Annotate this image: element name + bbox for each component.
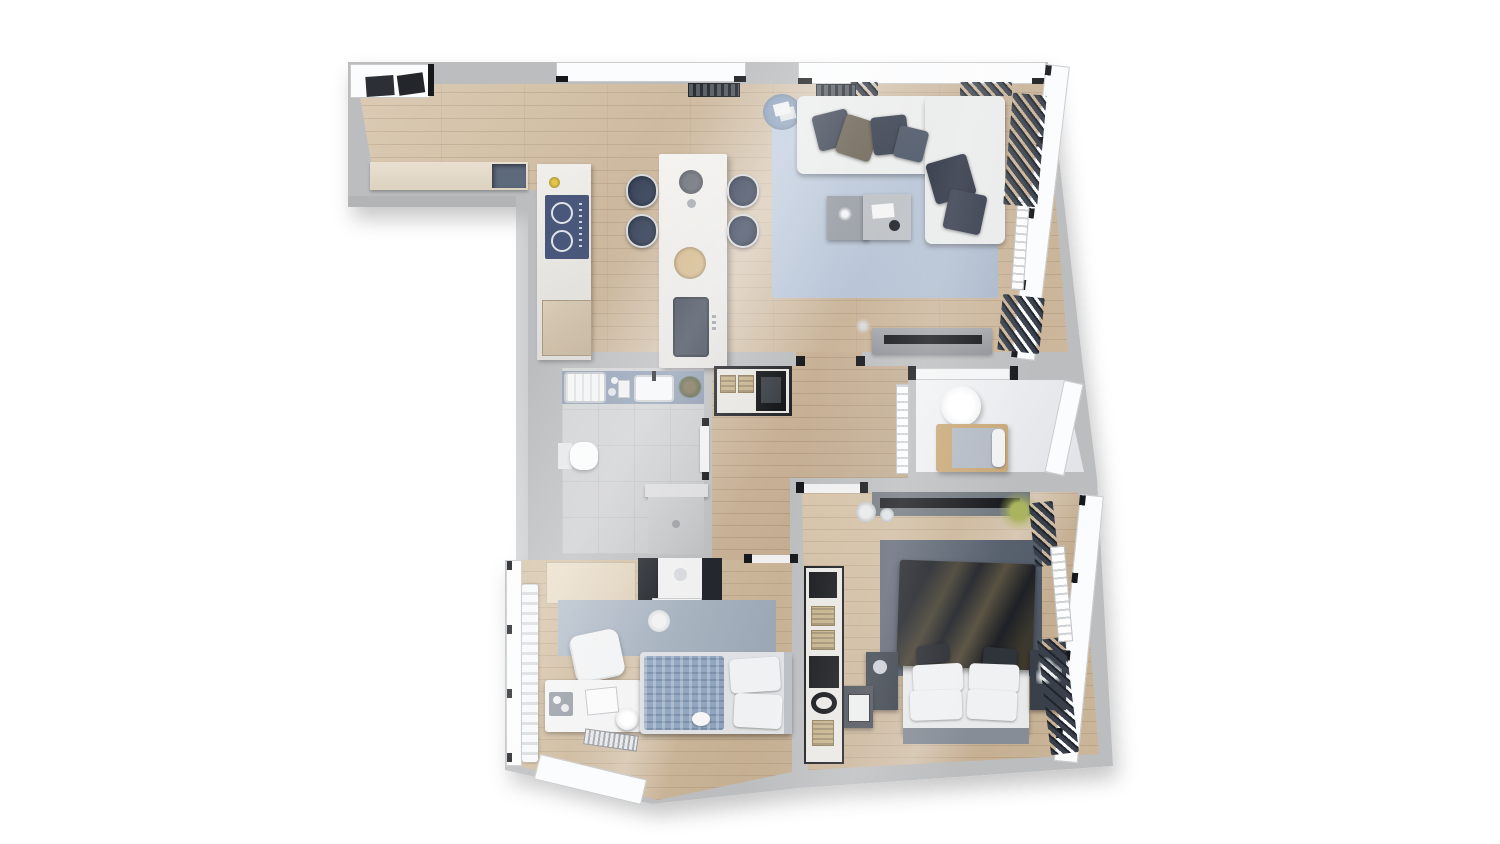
door-jamb	[796, 356, 805, 366]
round-stool	[616, 708, 638, 730]
master-pillow	[909, 689, 962, 721]
bedroom2-door	[752, 555, 790, 563]
door-jamb	[428, 64, 434, 96]
island-sink	[673, 297, 709, 357]
fruit-bowl	[674, 247, 706, 279]
living-curtain-top-right	[960, 82, 1012, 96]
table-decor	[836, 206, 854, 222]
bed2-plush-toy	[692, 712, 710, 726]
island-faucet	[712, 312, 716, 332]
living-curtain-right-lower	[997, 294, 1045, 354]
bathtub	[564, 372, 606, 403]
bedroom2-builtin-closet	[546, 562, 636, 604]
bath-tray	[618, 380, 630, 398]
master-cushion	[916, 643, 950, 664]
wall-shading	[348, 196, 528, 560]
coffee-table-book	[871, 203, 894, 219]
master-wardrobe	[804, 566, 844, 764]
wardrobe-hat	[811, 692, 837, 714]
bathroom-door	[700, 426, 709, 472]
burner	[551, 202, 573, 224]
pendant-lamp-small	[687, 199, 696, 208]
bath-candle	[611, 377, 618, 384]
balcony-table	[941, 386, 981, 426]
entry-mat	[365, 75, 394, 97]
door-jamb	[702, 472, 709, 480]
wardrobe-box	[809, 656, 839, 688]
burner	[551, 230, 573, 252]
wardrobe-basket	[811, 630, 835, 650]
cooktop-controls	[579, 203, 582, 251]
hall-radiator	[896, 384, 909, 474]
bath-faucet	[652, 371, 656, 381]
closet-basket	[738, 375, 754, 393]
nightstand-lamp	[873, 660, 887, 674]
toilet-bowl	[570, 442, 598, 470]
door-jamb	[1010, 366, 1018, 380]
cooktop	[545, 195, 589, 259]
entry-mat	[397, 72, 426, 95]
bar-stool	[727, 214, 759, 248]
balcony-door	[914, 368, 1010, 380]
bar-stool	[626, 174, 658, 208]
bed2-pillow	[733, 693, 783, 729]
kitchen-window-radiator	[688, 83, 740, 97]
door-jamb	[796, 482, 804, 493]
tv	[884, 335, 982, 344]
bath-candle	[608, 388, 616, 396]
window-jamb	[798, 78, 812, 84]
sewing-machine	[848, 694, 870, 722]
console-vase	[856, 502, 876, 522]
door-jamb	[856, 356, 865, 366]
bed2-pillow	[729, 656, 781, 693]
desk-laptop	[585, 686, 620, 715]
desk-tray	[549, 692, 573, 716]
single-bed-blanket	[644, 656, 724, 730]
rug-ball-decor	[648, 610, 670, 632]
window-jambs	[507, 561, 512, 765]
bath-plant	[678, 376, 702, 398]
tray-cup	[553, 696, 561, 704]
washing-machine	[756, 371, 786, 411]
wardrobe-basket	[812, 720, 834, 746]
washer-drum	[761, 377, 781, 403]
door-jamb	[702, 418, 709, 426]
sofa-cushion	[942, 188, 987, 235]
console-vase	[880, 508, 894, 522]
closet-basket	[720, 375, 736, 393]
door-jamb	[860, 482, 868, 493]
desk-chair	[568, 627, 627, 684]
flower-decor	[549, 177, 560, 188]
living-window	[798, 62, 1046, 84]
floor-plan-canvas	[0, 0, 1500, 844]
master-headboard	[903, 728, 1029, 744]
bedroom2-curtain	[522, 584, 538, 762]
bed2-headboard	[784, 652, 792, 734]
shower-partition-wall	[645, 484, 708, 497]
pendant-lamp	[679, 170, 703, 194]
window-jamb	[734, 76, 746, 82]
oven-cabinet	[542, 300, 592, 356]
bedroom2-window-left	[506, 560, 522, 766]
wardrobe-basket	[811, 606, 835, 626]
door-jamb	[908, 366, 916, 380]
window-jamb	[556, 76, 568, 82]
door-jamb	[790, 554, 798, 563]
tray-cup	[561, 704, 569, 712]
bar-stool	[727, 174, 759, 208]
balcony-lounge-pillow	[992, 429, 1005, 467]
wardrobe-box	[809, 572, 837, 598]
master-pillow	[966, 689, 1018, 722]
shower-drain	[672, 520, 680, 528]
master-door	[804, 484, 860, 493]
bedroom2-wardrobe-dark-right	[702, 558, 722, 606]
wardrobe-knob	[674, 568, 687, 581]
bar-stool	[626, 214, 658, 248]
coffee-table-bowl	[889, 220, 900, 231]
kitchen-window	[556, 62, 746, 82]
sideboard-decor	[854, 318, 872, 334]
door-jamb	[744, 554, 752, 563]
kitchen-counter-sink	[492, 164, 526, 188]
